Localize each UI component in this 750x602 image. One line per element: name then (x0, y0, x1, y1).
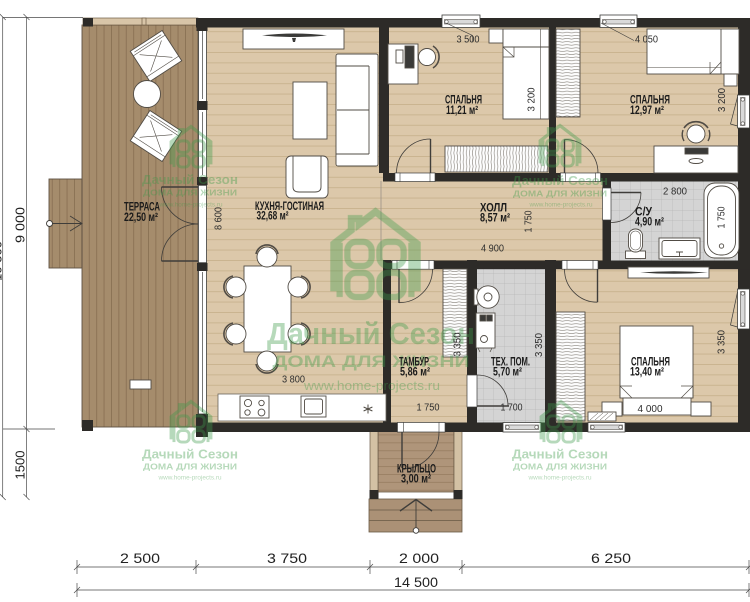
svg-text:4,90 м²: 4,90 м² (635, 215, 664, 229)
svg-text:4 900: 4 900 (481, 244, 504, 255)
svg-text:4 050: 4 050 (635, 35, 658, 46)
svg-text:3 750: 3 750 (267, 551, 307, 566)
svg-text:ДОМА ДЛЯ ЖИЗНИ: ДОМА ДЛЯ ЖИЗНИ (513, 462, 607, 471)
svg-text:ДОМА ДЛЯ ЖИЗНИ: ДОМА ДЛЯ ЖИЗНИ (513, 190, 607, 199)
svg-text:12,97 м²: 12,97 м² (630, 103, 664, 117)
svg-text:1500: 1500 (14, 450, 28, 479)
svg-text:5,86 м²: 5,86 м² (400, 365, 430, 379)
svg-text:11,21 м²: 11,21 м² (446, 103, 478, 117)
svg-text:3 500: 3 500 (457, 35, 480, 46)
svg-text:3 350: 3 350 (534, 333, 545, 357)
svg-text:3 800: 3 800 (282, 375, 305, 386)
svg-text:Дачный Сезон: Дачный Сезон (142, 173, 238, 187)
svg-text:22,50 м²: 22,50 м² (124, 210, 158, 224)
svg-text:www.home-projects.ru: www.home-projects.ru (528, 202, 593, 209)
svg-text:3 350: 3 350 (453, 332, 464, 356)
svg-text:ДОМА ДЛЯ ЖИЗНИ: ДОМА ДЛЯ ЖИЗНИ (143, 189, 237, 198)
svg-text:ДОМА ДЛЯ ЖИЗНИ: ДОМА ДЛЯ ЖИЗНИ (143, 462, 237, 471)
svg-text:2 500: 2 500 (120, 551, 160, 566)
svg-text:1 750: 1 750 (417, 403, 440, 414)
svg-text:5,70 м²: 5,70 м² (493, 365, 522, 379)
svg-text:14 500: 14 500 (394, 575, 438, 590)
svg-text:3 350: 3 350 (717, 330, 728, 354)
svg-text:9 000: 9 000 (14, 207, 28, 243)
svg-text:13,40 м²: 13,40 м² (630, 365, 664, 379)
svg-text:www.home-projects.ru: www.home-projects.ru (527, 475, 592, 482)
svg-text:1 750: 1 750 (717, 206, 728, 228)
svg-text:1 750: 1 750 (524, 210, 535, 232)
svg-text:2 000: 2 000 (399, 551, 439, 566)
svg-text:4 000: 4 000 (638, 404, 663, 415)
svg-text:Дачный Сезон: Дачный Сезон (267, 316, 475, 351)
svg-text:Дачный Сезон: Дачный Сезон (142, 448, 238, 462)
svg-text:Дачный Сезон: Дачный Сезон (512, 448, 608, 462)
svg-text:32,68 м²: 32,68 м² (257, 209, 289, 223)
svg-text:www.home-projects.ru: www.home-projects.ru (157, 475, 222, 482)
svg-text:3 200: 3 200 (527, 87, 538, 111)
svg-text:10 500: 10 500 (0, 241, 5, 281)
svg-text:8,57 м²: 8,57 м² (480, 211, 510, 225)
svg-text:www.home-projects.ru: www.home-projects.ru (303, 379, 440, 393)
svg-text:6 250: 6 250 (591, 551, 631, 566)
svg-text:Дачный Сезон: Дачный Сезон (512, 174, 608, 188)
svg-text:3,00 м²: 3,00 м² (401, 472, 431, 486)
svg-text:3 200: 3 200 (717, 88, 728, 112)
svg-text:8 600: 8 600 (214, 207, 225, 230)
svg-text:ДОМА ДЛЯ ЖИЗНИ: ДОМА ДЛЯ ЖИЗНИ (273, 352, 470, 371)
svg-text:2 800: 2 800 (663, 187, 687, 198)
svg-text:1 700: 1 700 (501, 403, 523, 414)
